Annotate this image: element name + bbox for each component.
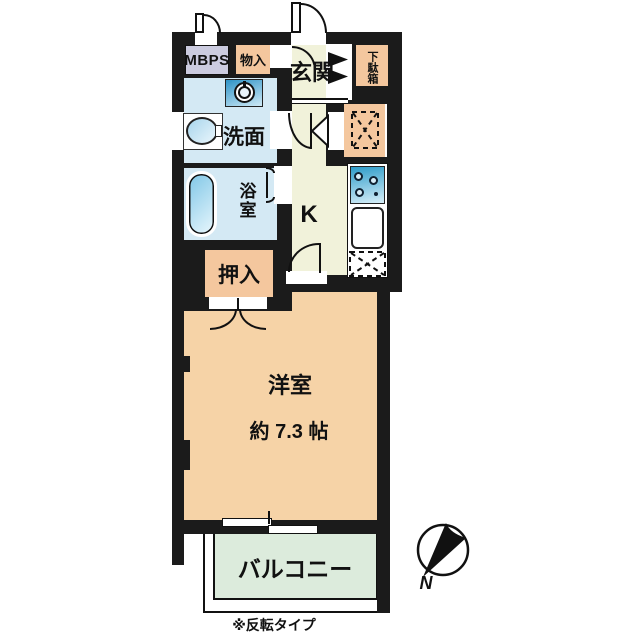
wall-pillar-bump-2 bbox=[184, 440, 190, 470]
wall-pillar-bump-1 bbox=[184, 356, 190, 372]
label-storage: 物入 bbox=[236, 45, 270, 74]
opening-arrow-icon bbox=[310, 114, 330, 150]
label-closet: 押入 bbox=[207, 261, 271, 287]
wall-opening-top-left bbox=[195, 32, 217, 45]
sliding-window-panel-right bbox=[268, 525, 318, 534]
label-bathroom: 浴室 bbox=[234, 176, 258, 226]
bathtub-icon bbox=[186, 171, 217, 237]
sliding-window-panel-left bbox=[222, 518, 272, 527]
label-shoe-cabinet: 下駄箱 bbox=[358, 47, 386, 87]
label-washroom: 洗面 bbox=[218, 122, 270, 150]
entrance-step bbox=[292, 98, 348, 104]
vanity-sink-icon bbox=[186, 117, 218, 145]
sliding-window-tick bbox=[268, 511, 270, 524]
meterbox-door-swing-icon bbox=[204, 14, 221, 33]
entrance-door-swing-icon bbox=[301, 3, 327, 33]
north-label: N bbox=[411, 571, 441, 595]
wall-opening-entrance bbox=[291, 32, 326, 45]
fridge-opening bbox=[328, 112, 344, 150]
wall-opening-bath bbox=[274, 166, 292, 204]
label-western-room-size: 約 7.3 帖 bbox=[229, 415, 349, 443]
label-balcony: バルコニー bbox=[225, 552, 365, 582]
stove-icon bbox=[350, 166, 385, 204]
floorplan-canvas: MBPS 物入 玄関 下駄箱 洗面 浴室 K 押入 洋室 約 7.3 帖 バルコ… bbox=[0, 0, 640, 640]
label-entrance: 玄関 bbox=[288, 56, 336, 86]
label-meter-box: MBPS bbox=[185, 45, 229, 75]
kitchen-door-leaf bbox=[319, 243, 321, 273]
bath-door-panel bbox=[266, 172, 268, 198]
refrigerator-space-icon bbox=[350, 110, 380, 150]
wall-wash-bath-divider bbox=[183, 163, 277, 168]
wall-right-upper bbox=[387, 32, 402, 277]
counter-dashed-space-icon bbox=[349, 251, 386, 277]
note-label: ※反転タイプ bbox=[208, 614, 340, 636]
wall-under-shoebox bbox=[348, 86, 388, 104]
meterbox-door-leaf bbox=[195, 13, 204, 33]
kitchen-sink-icon bbox=[351, 207, 384, 249]
washroom-door-leaf bbox=[310, 113, 312, 149]
label-kitchen: K bbox=[294, 200, 324, 230]
entrance-door-leaf bbox=[291, 2, 301, 33]
label-western-room: 洋室 bbox=[240, 370, 340, 398]
washing-machine-icon bbox=[225, 79, 263, 107]
